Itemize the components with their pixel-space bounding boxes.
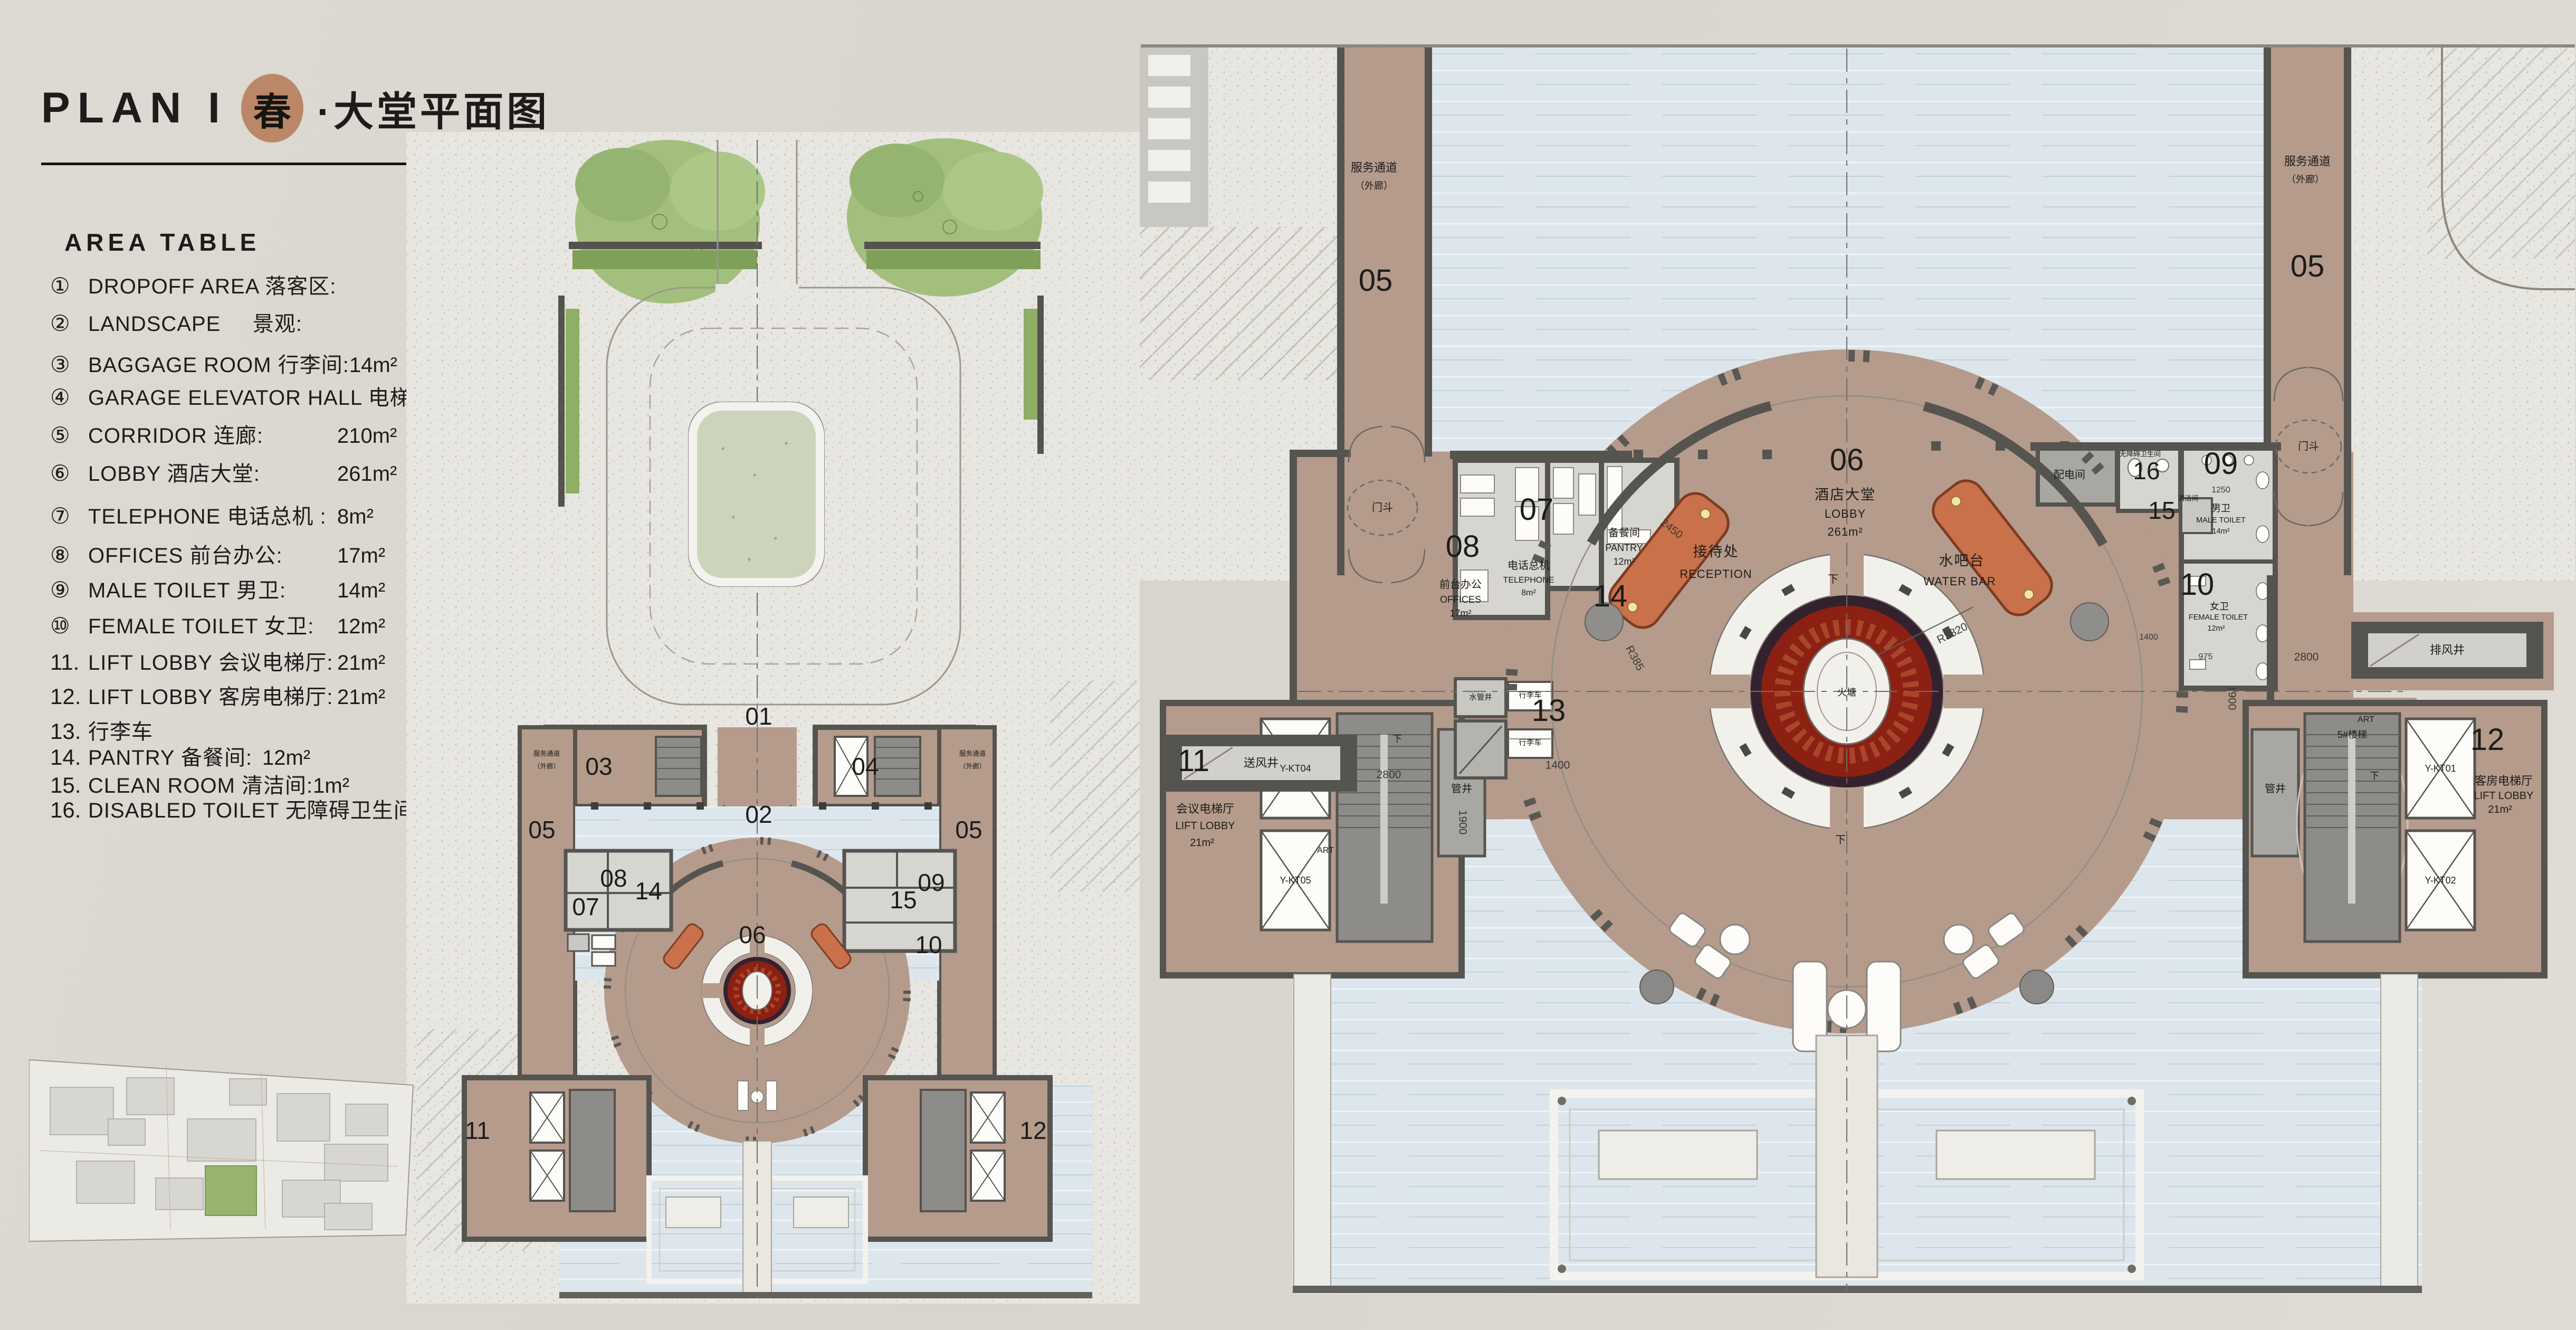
dim-2800-l: 2800 (1377, 769, 1401, 781)
area-row-num: 16. (50, 797, 88, 823)
lbl-telephone-en: TELEPHONE (1503, 576, 1554, 585)
lbl-fire-pit: 火塘 (1837, 688, 1856, 697)
lbl-vestibule-right: 门斗 (2298, 441, 2319, 452)
lbl-lift-area-l: 21m² (1190, 838, 1214, 848)
area-row-num: ④ (50, 384, 88, 410)
lbl-kt05: Y-KT05 (1280, 876, 1311, 885)
area-row-label: GARAGE ELEVATOR HALL 电梯厅: (88, 381, 440, 411)
lbl-pantry-area: 12m² (1613, 557, 1635, 566)
dim-2800-r: 2800 (2294, 652, 2319, 663)
lbl-r06: 06 (1830, 445, 1864, 476)
dim-975: 975 (2199, 653, 2213, 661)
lbl-pantry-en: PANTRY (1605, 543, 1643, 553)
plan-sheet: PLAN I 春 ·大堂平面图 AREA TABLE ①DROPOFF AREA… (0, 0, 2576, 1330)
lbl-down-l: 下 (1392, 734, 1402, 744)
season-badge: 春 (241, 74, 303, 142)
lbl-exhaust-shaft: 排风井 (2430, 644, 2465, 656)
area-row-label: BAGGAGE ROOM 行李间: (88, 348, 349, 378)
area-table-heading: AREA TABLE (64, 228, 260, 256)
area-row-num: ① (50, 273, 88, 299)
lbl-down-top: 下 (1828, 574, 1838, 585)
lbl-r10: 10 (2180, 569, 2215, 600)
current-plan-highlight (205, 1166, 256, 1215)
lbl-12: 12 (1019, 1118, 1046, 1143)
lbl-vestibule-left: 门斗 (1372, 502, 1393, 513)
lbl-female-cn: 女卫 (2210, 602, 2229, 611)
area-row-num: ⑦ (50, 503, 88, 529)
area-row-label: FEMALE TOILET 女卫: (88, 609, 337, 640)
area-row-label: OFFICES 前台办公: (88, 538, 337, 569)
area-row: ③BAGGAGE ROOM 行李间:14m² (50, 348, 397, 378)
area-row: ①DROPOFF AREA 落客区: (50, 269, 337, 300)
lbl-svc-l1: 服务通道 (533, 750, 560, 757)
area-row-value: 14m² (349, 354, 397, 377)
lbl-kt02: Y-KT02 (2425, 876, 2456, 885)
dim-1400-l: 1400 (1545, 760, 1570, 771)
area-row-num: ⑤ (50, 422, 88, 448)
lbl-down-r: 下 (2370, 771, 2379, 781)
right-plan-drawing (1140, 42, 2576, 1309)
area-row-num: ② (50, 310, 88, 336)
area-row-label: LANDSCAPE 景观: (88, 307, 337, 337)
lbl-r05-right: 05 (2291, 251, 2325, 282)
lbl-male-en: MALE TOILET (2196, 517, 2246, 525)
lbl-art-r: ART (2358, 716, 2374, 724)
lbl-offices-en: OFFICES (1440, 595, 1481, 604)
lbl-pipe-shaft-l: 管井 (1451, 784, 1472, 794)
area-row-num: ③ (50, 351, 88, 377)
title-text: ·大堂平面图 (317, 79, 550, 137)
area-row-value: 17m² (337, 544, 385, 568)
area-row: ⑩FEMALE TOILET 女卫:12m² (50, 609, 385, 640)
lbl-05-right: 05 (955, 818, 982, 842)
lbl-waterbar-cn: 水吧台 (1939, 554, 1985, 568)
lbl-svc-r2: （外廊） (959, 763, 986, 770)
area-row: ⑤CORRIDOR 连廊:210m² (50, 419, 397, 449)
lbl-reception-cn: 接待处 (1693, 545, 1739, 559)
area-row-label: LIFT LOBBY 客房电梯厅: (88, 680, 337, 710)
season-char: 春 (253, 81, 291, 136)
lbl-11: 11 (465, 1118, 490, 1143)
lbl-trolley-2: 行李车 (1519, 739, 1542, 747)
lbl-r07: 07 (1520, 495, 1554, 525)
area-row-value: 14m² (337, 579, 385, 603)
lbl-r11: 11 (1178, 746, 1209, 776)
lbl-03: 03 (585, 754, 612, 778)
lbl-08: 08 (600, 866, 627, 890)
lbl-disabled: 无障碍卫生间 (2120, 451, 2161, 458)
lbl-clean-room: 清洁间 (2178, 495, 2198, 502)
area-row: ⑧OFFICES 前台办公:17m² (50, 538, 385, 569)
area-row-value: 12m² (337, 615, 385, 639)
area-row-num: 11. (50, 650, 88, 675)
lbl-stair5: 5#楼梯 (2338, 730, 2367, 739)
area-row-label: LIFT LOBBY 会议电梯厅: (88, 645, 337, 676)
lbl-14: 14 (635, 879, 662, 903)
lbl-lift-lobby-en-r: LIFT LOBBY (2474, 791, 2533, 801)
lbl-down-bottom: 下 (1835, 835, 1846, 845)
lbl-06: 06 (739, 923, 766, 947)
lbl-offices-area: 17m² (1449, 609, 1471, 618)
lbl-female-area: 12m² (2207, 625, 2225, 633)
lbl-guest-lift-cn: 客房电梯厅 (2475, 775, 2533, 787)
area-row: 14.PANTRY 备餐间:12m² (50, 740, 310, 771)
area-row-label: TELEPHONE 电话总机 : (88, 499, 337, 530)
lbl-r15: 15 (2148, 498, 2175, 522)
area-row: ⑨MALE TOILET 男卫:14m² (50, 573, 385, 604)
lbl-waterbar-en: WATER BAR (1923, 576, 1996, 587)
area-row: 12.LIFT LOBBY 客房电梯厅:21m² (50, 680, 385, 710)
lbl-lobby-en: LOBBY (1825, 508, 1866, 520)
lbl-svc-passage: 服务通道 (2284, 156, 2331, 167)
area-row: 11.LIFT LOBBY 会议电梯厅:21m² (50, 645, 385, 676)
lbl-lobby-cn: 酒店大堂 (1815, 488, 1876, 502)
area-row-num: 12. (50, 684, 88, 709)
lbl-lobby-area: 261m² (1827, 526, 1863, 538)
lbl-r08: 08 (1446, 531, 1480, 562)
landscape-island (693, 406, 820, 582)
lbl-r09: 09 (2204, 449, 2238, 479)
lbl-female-en: FEMALE TOILET (2189, 614, 2248, 622)
lbl-r12: 12 (2470, 725, 2505, 755)
area-row-num: ⑩ (50, 613, 88, 639)
lbl-lift-lobby-en-l: LIFT LOBBY (1175, 821, 1235, 831)
area-row-value: 8m² (337, 505, 374, 529)
lbl-trolley-1: 行李车 (1519, 692, 1542, 700)
lbl-09: 09 (918, 870, 944, 895)
area-row-value: 261m² (337, 462, 397, 486)
area-row-label: MALE TOILET 男卫: (88, 573, 337, 604)
lbl-meeting-lift-cn: 会议电梯厅 (1176, 803, 1234, 815)
area-row-label: PANTRY 备餐间: (88, 740, 262, 771)
dim-1250: 1250 (2211, 486, 2230, 495)
area-row-label: CORRIDOR 连廊: (88, 419, 337, 449)
area-row-label: DROPOFF AREA 落客区: (88, 269, 337, 300)
lbl-kt01: Y-KT01 (2425, 764, 2456, 773)
lbl-svc-passage-sub: （外廊） (2286, 175, 2324, 184)
site-key-map (29, 1056, 419, 1261)
dim-1900-l: 1900 (1457, 810, 1468, 835)
area-row-num: ⑨ (50, 577, 88, 603)
lbl-r05-left: 05 (1359, 265, 1393, 296)
lbl-power-room: 配电间 (2054, 470, 2085, 480)
lbl-kt04: Y-KT04 (1280, 764, 1311, 773)
area-row: ⑦TELEPHONE 电话总机 :8m² (50, 499, 374, 530)
lbl-telephone-cn: 电话总机 (1508, 560, 1550, 571)
lbl-r14: 14 (1594, 581, 1628, 612)
lbl-r16: 16 (2133, 459, 2160, 483)
dim-1900-r: 1900 (2227, 686, 2238, 710)
area-row: ②LANDSCAPE 景观: (50, 307, 337, 337)
dim-1400-r: 1400 (2139, 633, 2158, 642)
lbl-07: 07 (572, 895, 599, 919)
lbl-male-cn: 男卫 (2211, 503, 2230, 513)
lbl-01: 01 (745, 704, 772, 728)
lbl-10: 10 (915, 933, 942, 957)
lbl-svc-passage-sub: （外廊） (1355, 181, 1393, 191)
area-row-label: LOBBY 酒店大堂: (88, 457, 337, 487)
lbl-15: 15 (890, 888, 917, 912)
lbl-r13: 13 (1532, 696, 1566, 726)
area-row-value: 21m² (337, 686, 385, 709)
lbl-reception-en: RECEPTION (1680, 568, 1752, 580)
area-row: ⑥LOBBY 酒店大堂:261m² (50, 457, 397, 487)
lbl-water-shaft: 水管井 (1469, 694, 1492, 702)
lbl-02: 02 (745, 802, 772, 826)
area-row-value: 12m² (262, 746, 310, 770)
lbl-art-l: ART (1317, 847, 1334, 855)
lbl-offices-cn: 前台办公 (1439, 579, 1482, 590)
lbl-lift-area-r: 21m² (2488, 804, 2512, 815)
lbl-telephone-area: 8m² (1521, 589, 1536, 597)
lbl-svc-passage: 服务通道 (1351, 162, 1397, 174)
area-row-value: 210m² (337, 424, 397, 448)
lbl-pipe-shaft-r: 管井 (2265, 784, 2286, 794)
lbl-05-left: 05 (528, 818, 555, 842)
lbl-svc-r1: 服务通道 (959, 750, 986, 757)
lbl-svc-l2: （外廊） (533, 763, 560, 770)
area-row-label: DISABLED TOILET 无障碍卫生间: (88, 793, 422, 824)
area-row-num: ⑧ (50, 542, 88, 568)
area-row-value: 21m² (337, 651, 385, 675)
lbl-04: 04 (852, 754, 879, 778)
area-row-num: ⑥ (50, 460, 88, 486)
lbl-male-area: 14m² (2212, 528, 2229, 536)
lbl-pantry-cn: 备餐间 (1608, 528, 1640, 538)
plan-index-label: PLAN I (41, 83, 227, 133)
lbl-supply-shaft: 送风井 (1244, 757, 1279, 769)
area-row-num: 14. (50, 745, 88, 770)
